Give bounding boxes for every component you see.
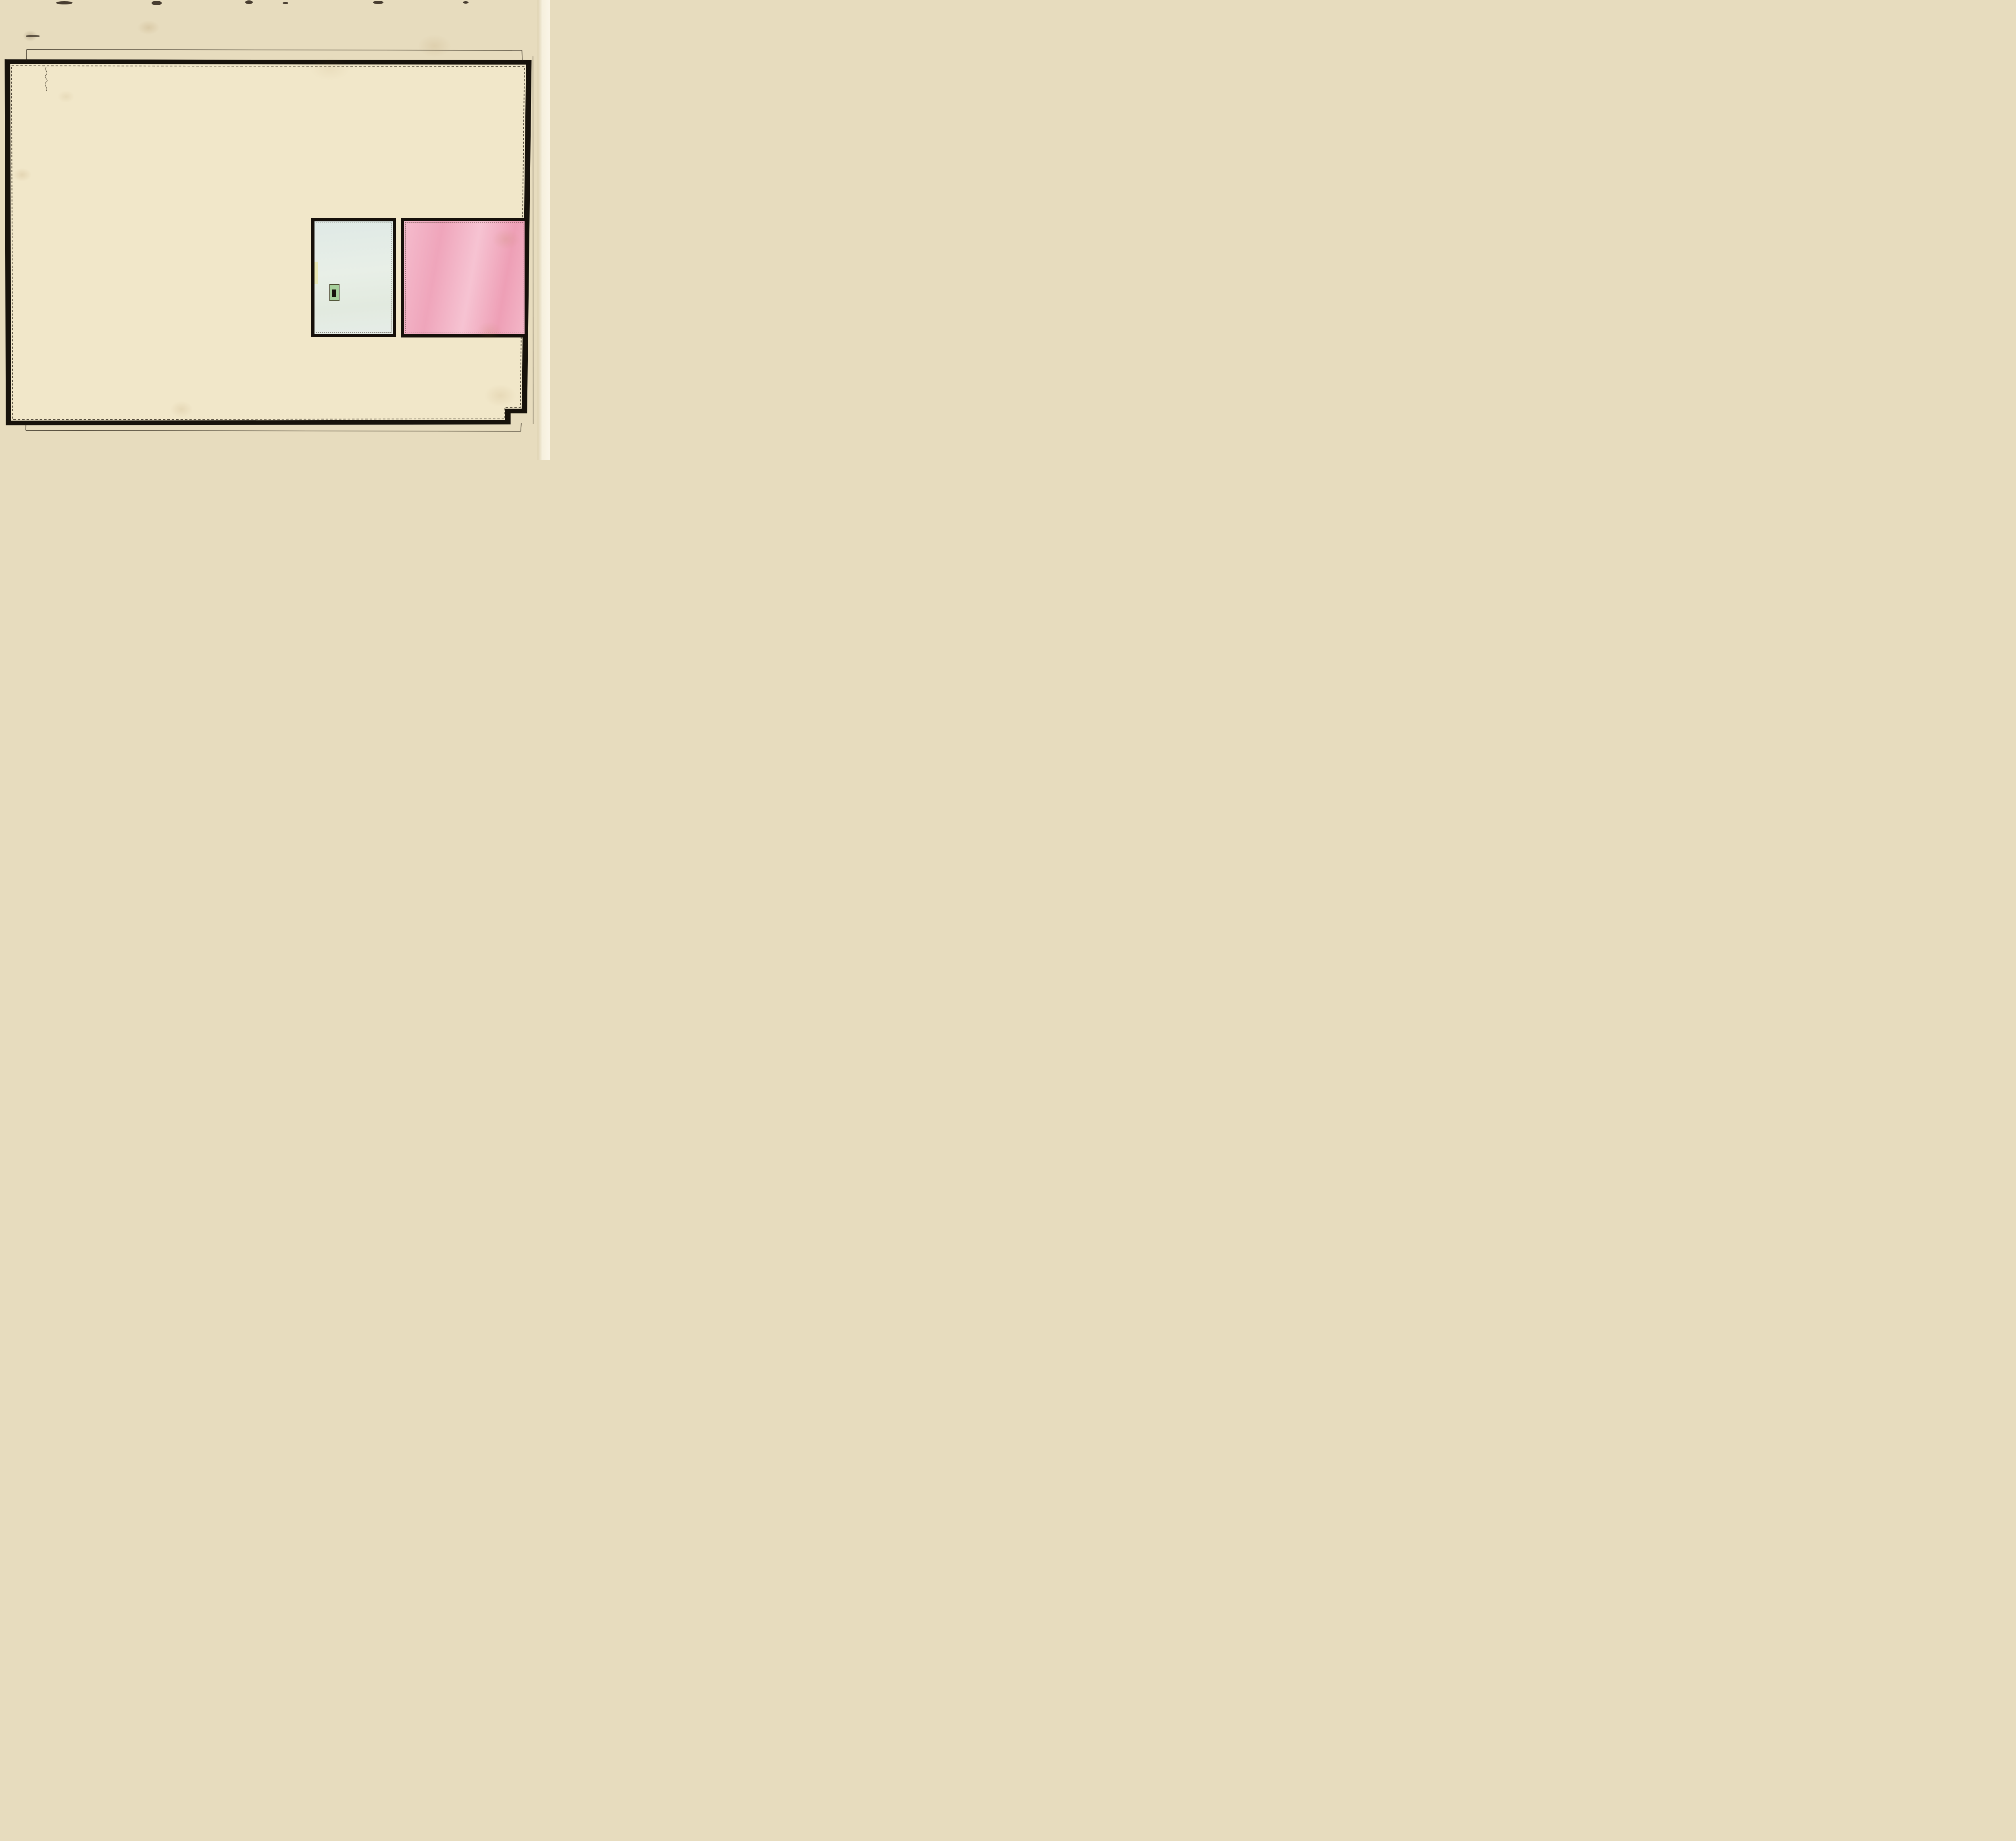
torn-edge-mark	[152, 1, 162, 5]
atlas-page	[0, 0, 550, 460]
ink-smudge	[26, 35, 40, 37]
torn-edge-mark	[283, 2, 288, 4]
map-labels-layer	[0, 0, 550, 460]
business-notices	[342, 343, 527, 346]
